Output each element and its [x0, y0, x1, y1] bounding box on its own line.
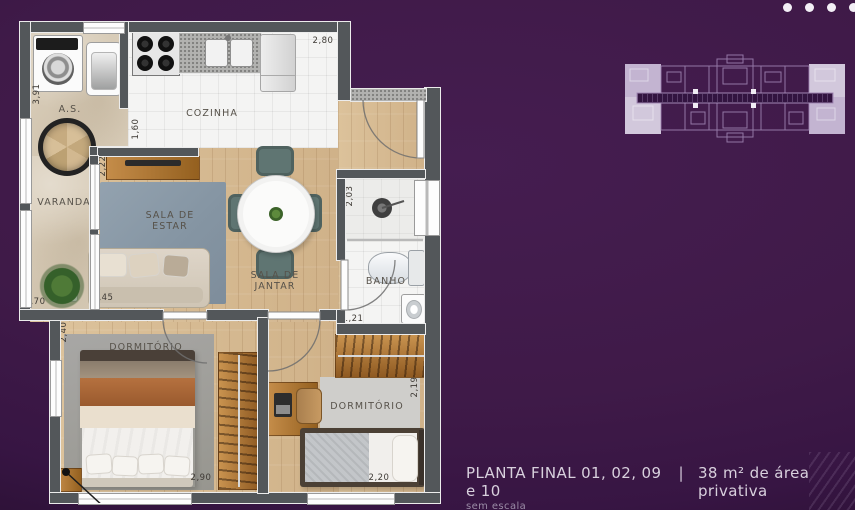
entry-door-arc: [363, 100, 421, 158]
caption-title: PLANTA FINAL 01, 02, 09 e 10: [466, 464, 664, 500]
caption-separator: |: [678, 464, 683, 482]
keyplan-corridor: [637, 89, 833, 108]
bullet-dot-icon: [783, 3, 792, 12]
bedroom2-door-leaf: [268, 312, 320, 319]
bullet-dot-icon: [805, 3, 814, 12]
bedroom2-door-arc: [268, 319, 320, 371]
bath-door-leaf: [341, 260, 348, 310]
caption: PLANTA FINAL 01, 02, 09 e 10 | 38 m² de …: [466, 464, 855, 510]
entry-door-leaf: [417, 100, 424, 158]
bullet-dot-icon: [849, 3, 855, 12]
door-swing-overlay: [20, 22, 444, 503]
shower-arm: [382, 201, 404, 208]
caption-scale-note: sem escala: [466, 501, 855, 510]
building-key-plan: [623, 54, 847, 144]
bedroom1-door-leaf: [163, 312, 207, 319]
bath-door-arc: [345, 260, 395, 310]
floor-lamp-arm: [66, 472, 104, 503]
page-background: A.S. COZINHA VARANDA SALA DE ESTAR SALA …: [0, 0, 855, 510]
floor-lamp-icon: [62, 468, 70, 476]
bullet-dot-icon: [827, 3, 836, 12]
floor-plan: A.S. COZINHA VARANDA SALA DE ESTAR SALA …: [20, 22, 444, 503]
bedroom1-door-arc: [163, 319, 207, 363]
corner-stripes-decoration: [809, 452, 855, 510]
